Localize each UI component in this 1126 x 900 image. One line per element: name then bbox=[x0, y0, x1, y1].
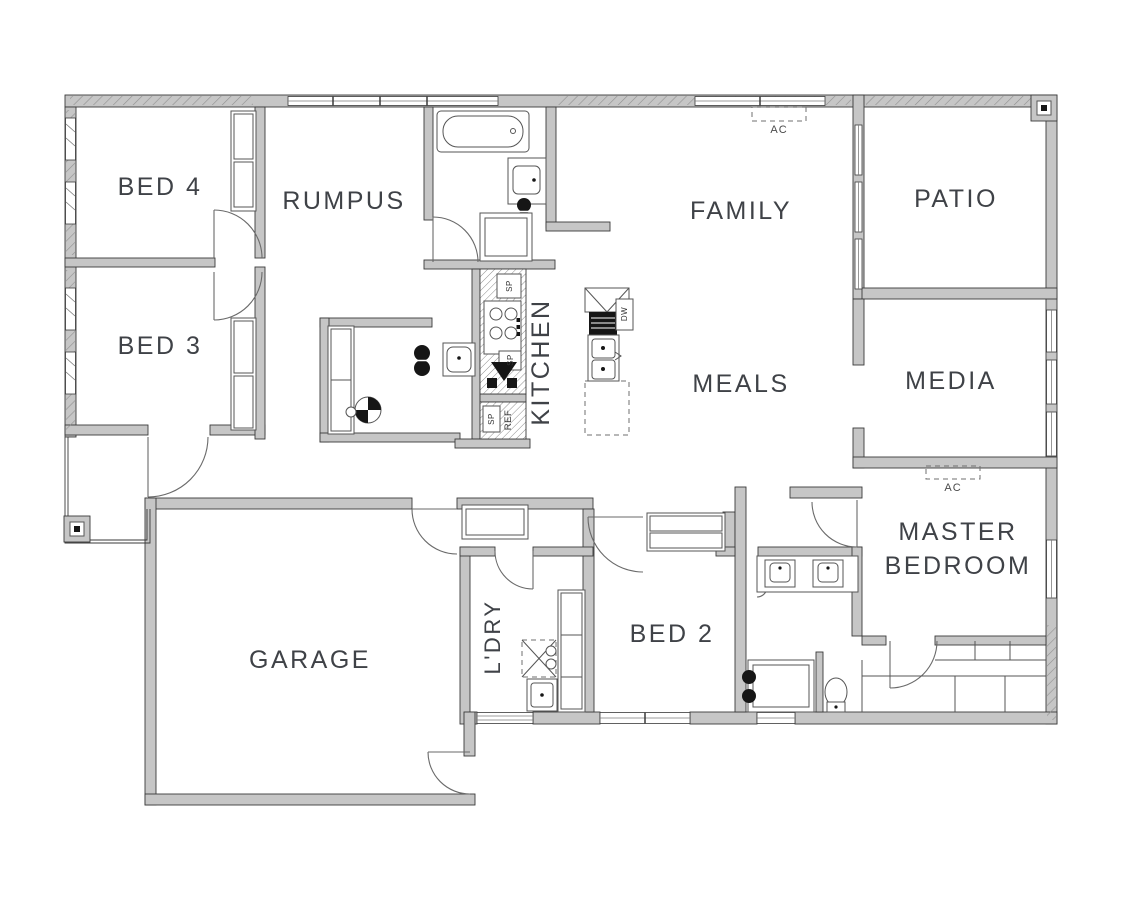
cooktop-icon bbox=[484, 301, 521, 354]
dw-label: DW bbox=[620, 307, 629, 321]
room-label-meals: MEALS bbox=[692, 370, 789, 398]
laundry-tub-icon bbox=[527, 679, 557, 711]
door-swing-garage-rear bbox=[428, 752, 470, 794]
door-swing-bed2 bbox=[588, 517, 643, 572]
room-label-patio: PATIO bbox=[914, 185, 998, 213]
door-swing-master bbox=[812, 500, 857, 547]
double-vanity-icon bbox=[757, 556, 858, 592]
floor-plan: BED 4 RUMPUS BED 3 FAMILY PATIO MEALS ME… bbox=[0, 0, 1126, 900]
room-label-master-line1: MASTER bbox=[898, 518, 1017, 546]
floor-plan-page: BED 4 RUMPUS BED 3 FAMILY PATIO MEALS ME… bbox=[0, 0, 1126, 900]
room-label-kitchen: KITCHEN bbox=[527, 298, 555, 425]
room-label-family: FAMILY bbox=[690, 197, 792, 225]
window bbox=[600, 713, 690, 724]
room-label-garage: GARAGE bbox=[249, 646, 371, 674]
door-swing-robe bbox=[890, 641, 937, 688]
patio-post bbox=[1031, 95, 1057, 121]
washing-machine-icon bbox=[522, 640, 556, 677]
room-label-bed3: BED 3 bbox=[118, 332, 203, 360]
window bbox=[1047, 310, 1057, 456]
window bbox=[1047, 540, 1057, 598]
bathtub-icon bbox=[437, 111, 529, 152]
window bbox=[66, 118, 76, 160]
porch-post bbox=[64, 516, 90, 542]
window bbox=[288, 97, 498, 106]
window bbox=[66, 288, 76, 330]
window bbox=[66, 352, 76, 394]
sliding-door bbox=[855, 125, 862, 289]
ac-unit bbox=[752, 107, 806, 121]
wardrobe-bed3 bbox=[231, 318, 256, 430]
room-label-master-line2: BEDROOM bbox=[885, 552, 1032, 580]
wall-hatch bbox=[70, 96, 253, 105]
door-swing-bathroom bbox=[433, 217, 478, 262]
ac-label: AC bbox=[770, 124, 787, 136]
window bbox=[695, 97, 825, 106]
sp-label: SP bbox=[487, 413, 496, 425]
ac-label: AC bbox=[944, 482, 961, 494]
toilet-icon bbox=[413, 345, 431, 376]
sp-label: SP bbox=[506, 354, 515, 366]
door-swing-entry bbox=[148, 437, 208, 497]
hall-cupboard bbox=[462, 505, 528, 539]
sp-label: SP bbox=[505, 280, 514, 292]
wall-hatch bbox=[866, 96, 1044, 105]
linen-cabinet bbox=[558, 590, 585, 712]
shower-icon bbox=[480, 213, 532, 261]
toilet-icon bbox=[825, 678, 847, 712]
room-label-laundry: L'DRY bbox=[480, 600, 505, 675]
door-swing-laundry bbox=[495, 551, 533, 589]
annotation-labels: AC AC REF SP SP SP DW bbox=[487, 124, 962, 494]
door-swing-garage bbox=[412, 509, 457, 554]
room-label-media: MEDIA bbox=[905, 367, 997, 395]
fixtures bbox=[64, 95, 1057, 712]
wardrobe-bed4 bbox=[231, 111, 256, 211]
room-label-bed2: BED 2 bbox=[630, 620, 715, 648]
window bbox=[757, 713, 795, 724]
basin-icon bbox=[443, 343, 475, 376]
shower-icon bbox=[742, 660, 814, 712]
wall-hatch bbox=[1047, 625, 1056, 720]
island-sink-icon bbox=[588, 335, 621, 381]
window bbox=[66, 182, 76, 224]
room-label-bed4: BED 4 bbox=[118, 173, 203, 201]
vanity-sink-icon bbox=[508, 158, 546, 204]
wardrobe-bed2 bbox=[647, 513, 725, 551]
linen-cabinet bbox=[328, 326, 354, 434]
room-label-rumpus: RUMPUS bbox=[282, 187, 405, 215]
laundry-door bbox=[477, 713, 533, 724]
ref-label: REF bbox=[503, 410, 514, 431]
